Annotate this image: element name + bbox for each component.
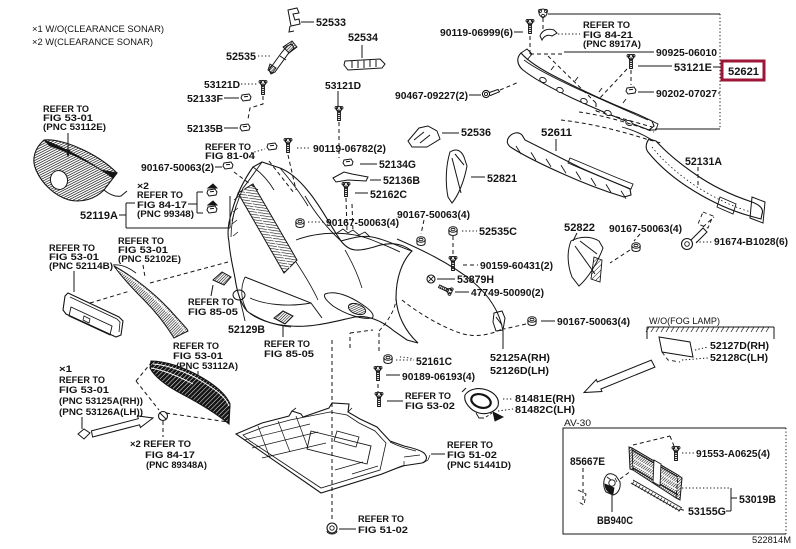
- svg-text:53121D: 53121D: [204, 80, 240, 91]
- svg-text:91674-B1028(6): 91674-B1028(6): [714, 237, 788, 248]
- svg-text:52126D(LH): 52126D(LH): [490, 366, 549, 377]
- svg-text:(PNC 52114B): (PNC 52114B): [49, 261, 113, 272]
- svg-text:522814M: 522814M: [752, 535, 791, 546]
- svg-text:FIG 53-02: FIG 53-02: [405, 401, 455, 412]
- svg-text:90167-50063(4): 90167-50063(4): [557, 317, 630, 328]
- svg-text:FIG 85-05: FIG 85-05: [188, 307, 239, 318]
- svg-text:90167-50063(4): 90167-50063(4): [326, 218, 399, 229]
- svg-text:52533: 52533: [316, 17, 346, 29]
- svg-text:FIG 81-04: FIG 81-04: [205, 151, 256, 162]
- svg-text:81482C(LH): 81482C(LH): [515, 405, 575, 416]
- svg-text:52611: 52611: [541, 127, 572, 139]
- svg-text:AV-30: AV-30: [564, 418, 591, 429]
- svg-text:(PNC 8917A): (PNC 8917A): [583, 39, 641, 50]
- svg-text:52129B: 52129B: [228, 324, 265, 336]
- svg-text:52822: 52822: [564, 222, 595, 234]
- svg-text:53019B: 53019B: [739, 494, 776, 506]
- svg-text:52534: 52534: [348, 32, 379, 44]
- svg-text:53121E: 53121E: [674, 62, 712, 74]
- svg-text:53879H: 53879H: [457, 274, 494, 286]
- svg-text:52133F: 52133F: [187, 94, 223, 105]
- svg-text:FIG 53-01: FIG 53-01: [59, 385, 110, 396]
- svg-text:90167-50063(2): 90167-50063(2): [141, 163, 214, 174]
- svg-text:52161C: 52161C: [416, 356, 452, 368]
- svg-text:×1 W/O(CLEARANCE SONAR): ×1 W/O(CLEARANCE SONAR): [32, 24, 164, 35]
- svg-text:(PNC 89348A): (PNC 89348A): [146, 460, 207, 471]
- svg-text:90167-50063(4): 90167-50063(4): [609, 224, 682, 235]
- svg-text:52535: 52535: [226, 51, 256, 63]
- svg-text:90467-09227(2): 90467-09227(2): [395, 91, 468, 102]
- svg-text:53121D: 53121D: [325, 81, 361, 92]
- svg-text:52136B: 52136B: [383, 175, 420, 187]
- svg-text:(PNC 53125A(RH)): (PNC 53125A(RH)): [59, 396, 143, 407]
- svg-text:52162C: 52162C: [370, 189, 407, 201]
- svg-text:W/O(FOG LAMP): W/O(FOG LAMP): [649, 316, 720, 327]
- svg-text:(PNC 51441D): (PNC 51441D): [447, 460, 511, 471]
- svg-text:91553-A0625(4): 91553-A0625(4): [696, 449, 770, 460]
- svg-text:(PNC 99348): (PNC 99348): [137, 209, 194, 220]
- svg-text:×1: ×1: [59, 364, 73, 375]
- svg-text:52134G: 52134G: [379, 159, 416, 171]
- svg-text:52821: 52821: [487, 173, 517, 185]
- svg-text:47749-50090(2): 47749-50090(2): [471, 288, 544, 299]
- svg-text:90119-06782(2): 90119-06782(2): [313, 144, 386, 155]
- svg-text:90189-06193(4): 90189-06193(4): [402, 372, 475, 383]
- svg-text:81481E(RH): 81481E(RH): [515, 394, 575, 405]
- svg-text:52536: 52536: [461, 127, 491, 139]
- svg-text:90159-60431(2): 90159-60431(2): [480, 261, 553, 272]
- svg-text:(PNC 53126A(LH)): (PNC 53126A(LH)): [59, 407, 143, 418]
- svg-text:90119-06999(6): 90119-06999(6): [440, 28, 513, 39]
- svg-text:85667E: 85667E: [570, 456, 605, 468]
- svg-text:BB940C: BB940C: [597, 515, 633, 527]
- svg-text:52127D(RH): 52127D(RH): [710, 341, 769, 352]
- svg-text:FIG 51-02: FIG 51-02: [358, 525, 408, 536]
- svg-text:×2 REFER TO: ×2 REFER TO: [130, 439, 191, 450]
- svg-text:52131A: 52131A: [685, 156, 722, 168]
- svg-text:52128C(LH): 52128C(LH): [710, 353, 768, 364]
- svg-text:52119A: 52119A: [80, 210, 118, 222]
- svg-text:(PNC 53112E): (PNC 53112E): [43, 122, 106, 133]
- svg-text:90202-07027: 90202-07027: [656, 89, 717, 100]
- svg-text:52621: 52621: [728, 66, 759, 78]
- svg-text:REFER TO: REFER TO: [358, 514, 404, 525]
- svg-text:52535C: 52535C: [479, 226, 517, 238]
- svg-text:(PNC 52102E): (PNC 52102E): [118, 254, 181, 265]
- svg-text:90925-06010: 90925-06010: [656, 48, 717, 59]
- svg-text:×2 W(CLEARANCE SONAR): ×2 W(CLEARANCE SONAR): [32, 37, 153, 48]
- svg-text:52135B: 52135B: [187, 124, 223, 135]
- svg-text:FIG 85-05: FIG 85-05: [264, 349, 315, 360]
- svg-text:90167-50063(4): 90167-50063(4): [397, 210, 470, 221]
- svg-text:52125A(RH): 52125A(RH): [490, 353, 550, 364]
- svg-text:53155G: 53155G: [688, 506, 726, 518]
